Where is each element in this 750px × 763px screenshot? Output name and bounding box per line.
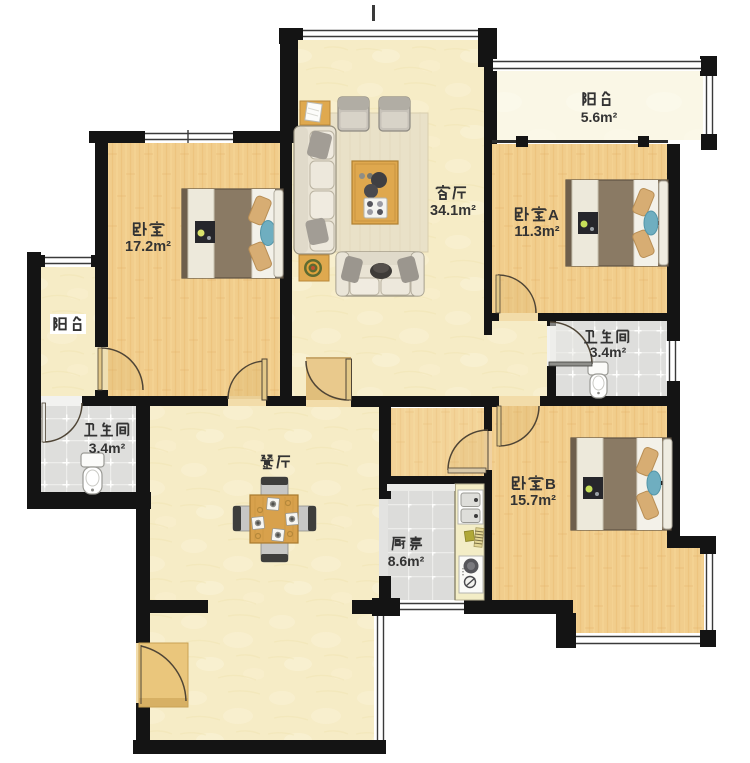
svg-text:11.3m²: 11.3m² [514, 224, 559, 240]
svg-text:34.1m²: 34.1m² [430, 203, 476, 219]
svg-text:8.6m²: 8.6m² [388, 553, 425, 569]
svg-text:B: B [545, 476, 556, 493]
svg-text:17.2m²: 17.2m² [125, 239, 171, 255]
svg-text:A: A [548, 207, 559, 224]
svg-text:5.6m²: 5.6m² [581, 109, 618, 125]
svg-text:3.4m²: 3.4m² [89, 440, 126, 456]
svg-text:15.7m²: 15.7m² [510, 493, 556, 509]
svg-text:3.4m²: 3.4m² [590, 344, 627, 360]
